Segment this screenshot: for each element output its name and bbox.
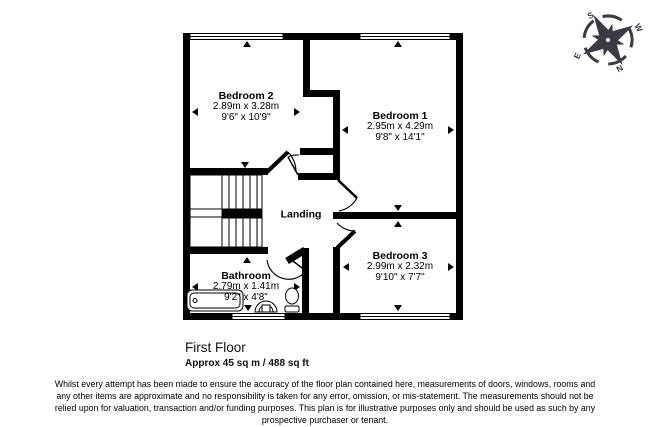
room-dim-imperial: 9'2" x 4'8" [213,292,279,303]
room-dim-metric: 2.95m x 4.29m [367,122,433,133]
compass-rose-icon: S W N E [568,0,647,79]
toilet-bowl [286,288,299,304]
room-label-bedroom-3: Bedroom 3 2.99m x 2.32m 9'10" x 7'7" [367,251,433,283]
room-label-bedroom-2: Bedroom 2 2.89m x 3.28m 9'6" x 10'9" [213,91,279,123]
plan-title: First Floor [185,340,246,355]
wall-bathroom-top [183,247,268,254]
wall-bedroom2-right [303,33,310,97]
door-arc-bedroom3 [337,223,355,231]
room-name: Landing [281,210,322,221]
arrow-up-icon [243,257,251,263]
compass-letter-s: S [586,9,596,21]
room-dim-metric: 2.79m x 1.41m [213,282,279,293]
arrow-down-icon [241,162,249,168]
arrow-down-icon [394,205,402,211]
toilet-cistern [285,306,299,312]
staircase [190,175,262,247]
disclaimer-text: Whilst every attempt has been made to en… [0,379,650,427]
stair-center-stringer [222,209,262,218]
plan-area-label: Approx 45 sq m / 488 sq ft [185,358,309,369]
door-leaf-bedroom1 [338,180,357,198]
room-label-bedroom-1: Bedroom 1 2.95m x 4.29m 9'8" x 14'1" [367,111,433,143]
floorplan-page: S W N E Bedroom 2 2.89m x 3.28m 9'6" x 1… [0,0,650,427]
wall-cupboard-bottom [298,173,340,180]
wall-bathroom-right [302,248,309,313]
door-arc-bedroom1 [339,198,357,211]
wall-outer-right [456,33,463,320]
sink-pedestal [262,305,270,312]
wall-cupboard-top [300,148,333,155]
compass-letter-n: N [615,62,625,74]
room-dim-metric: 2.89m x 3.28m [213,102,279,113]
door-leaf-bedroom3 [337,231,355,248]
door-arc-cupboard [288,155,299,157]
arrow-up-icon [394,41,402,47]
room-dim-imperial: 9'10" x 7'7" [367,272,433,283]
room-label-landing: Landing [281,210,322,221]
arrow-left-icon [192,108,198,116]
arrow-right-icon [448,126,454,134]
compass-letter-e: E [572,51,584,61]
disclaimer-line: Whilst every attempt has been made to en… [0,379,650,391]
wall-bedroom3-left [333,247,340,313]
arrow-up-icon [394,221,402,227]
room-dim-imperial: 9'6" x 10'9" [213,112,279,123]
door-leaf-bedroom2 [267,152,288,172]
floor-plan-canvas: S W N E [0,0,650,427]
arrow-right-icon [294,108,300,116]
room-label-bathroom: Bathroom 2.79m x 1.41m 9'2" x 4'8" [213,271,279,303]
room-dim-metric: 2.99m x 2.32m [367,262,433,273]
arrow-down-icon [244,305,252,311]
disclaimer-line: relied upon for valuation, transaction a… [0,403,650,415]
room-dim-imperial: 9'8" x 14'1" [367,132,433,143]
arrow-left-icon [342,126,348,134]
wall-outer-left [183,33,190,320]
disclaimer-line: any other items are approximate and no r… [0,391,650,403]
disclaimer-line: prospective purchaser or tenant. [0,415,650,427]
arrow-down-icon [394,305,402,311]
wall-bedroom1-left [333,90,340,180]
wall-bedroom2-bottom [183,168,268,175]
arrow-right-icon [448,263,454,271]
wall-bedroom3-top [333,212,463,219]
compass-letter-w: W [632,22,645,35]
arrow-left-icon [343,263,349,271]
arrow-up-icon [243,41,251,47]
